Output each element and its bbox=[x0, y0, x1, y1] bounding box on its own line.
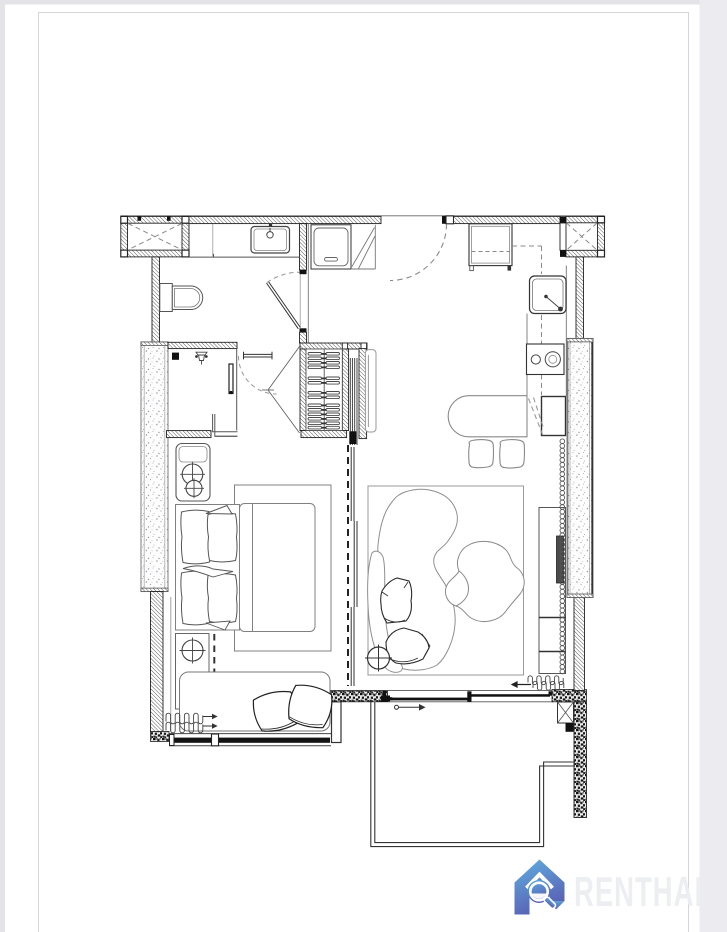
svg-text:RENTHAI: RENTHAI bbox=[574, 868, 703, 915]
